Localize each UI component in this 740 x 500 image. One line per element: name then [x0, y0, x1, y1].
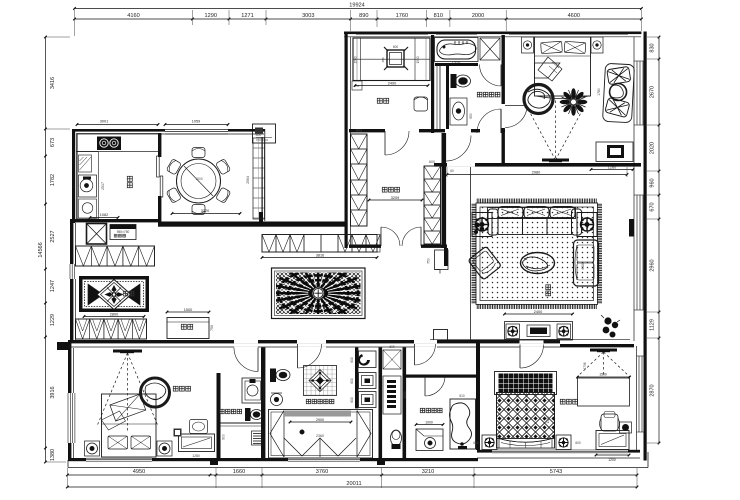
svg-text:2800: 2800: [110, 313, 118, 317]
svg-text:1594: 1594: [546, 416, 550, 423]
svg-text:20011: 20011: [346, 481, 361, 487]
svg-text:600: 600: [350, 397, 354, 403]
svg-text:950×750: 950×750: [117, 230, 130, 234]
svg-text:900: 900: [222, 434, 226, 440]
svg-text:2900: 2900: [316, 418, 324, 422]
svg-text:600: 600: [389, 345, 395, 349]
svg-text:1059: 1059: [192, 120, 200, 124]
svg-text:600: 600: [393, 45, 399, 49]
svg-text:14566: 14566: [38, 242, 44, 257]
svg-text:810: 810: [459, 394, 465, 398]
svg-text:2360: 2360: [316, 434, 324, 438]
svg-text:2870: 2870: [650, 384, 656, 396]
svg-text:600: 600: [350, 357, 354, 363]
svg-text:600: 600: [356, 129, 362, 133]
svg-text:1782: 1782: [50, 174, 56, 186]
svg-text:950: 950: [469, 113, 473, 119]
svg-text:1280: 1280: [192, 454, 200, 458]
svg-text:750: 750: [210, 325, 214, 331]
svg-text:1247: 1247: [50, 280, 56, 292]
svg-text:1500: 1500: [195, 177, 203, 181]
svg-text:830: 830: [650, 43, 656, 52]
svg-text:3816: 3816: [316, 254, 324, 258]
svg-text:2527: 2527: [50, 230, 56, 242]
svg-text:1129: 1129: [650, 319, 656, 331]
svg-text:1290: 1290: [205, 13, 217, 19]
svg-text:3416: 3416: [50, 77, 56, 89]
svg-text:2000: 2000: [472, 13, 484, 19]
svg-text:600: 600: [575, 441, 581, 445]
svg-text:2980: 2980: [532, 171, 540, 175]
svg-text:3220: 3220: [201, 209, 209, 213]
svg-text:2564: 2564: [246, 176, 250, 184]
svg-text:1500: 1500: [184, 308, 192, 312]
svg-text:1000: 1000: [403, 391, 407, 398]
svg-text:2020: 2020: [650, 142, 656, 154]
svg-text:4600: 4600: [568, 13, 580, 19]
svg-text:2670: 2670: [650, 86, 656, 98]
svg-text:750: 750: [427, 258, 431, 264]
svg-text:670: 670: [650, 202, 656, 211]
svg-text:810: 810: [434, 13, 443, 19]
svg-text:3916: 3916: [50, 386, 56, 398]
svg-text:2517: 2517: [101, 182, 105, 190]
svg-text:3210: 3210: [422, 469, 434, 475]
svg-text:600: 600: [350, 378, 354, 384]
svg-text:2490: 2490: [388, 82, 396, 86]
svg-text:3001: 3001: [100, 120, 108, 124]
svg-text:400: 400: [256, 133, 262, 137]
svg-text:1000: 1000: [425, 421, 433, 425]
svg-text:1200: 1200: [608, 458, 616, 462]
svg-text:3003: 3003: [302, 13, 314, 19]
svg-text:600: 600: [429, 160, 435, 164]
svg-text:600: 600: [473, 441, 479, 445]
svg-text:1590: 1590: [416, 56, 420, 63]
svg-text:60: 60: [450, 169, 454, 173]
svg-text:1660: 1660: [233, 469, 245, 475]
svg-text:3760: 3760: [316, 469, 328, 475]
svg-text:673: 673: [50, 138, 56, 147]
svg-text:1520: 1520: [452, 61, 460, 65]
svg-text:890: 890: [359, 13, 368, 19]
svg-text:6400: 6400: [581, 262, 585, 269]
svg-text:2960: 2960: [650, 259, 656, 271]
svg-text:1780: 1780: [597, 88, 601, 96]
svg-text:1736: 1736: [583, 362, 587, 369]
svg-text:1500: 1500: [354, 56, 358, 63]
svg-text:1380: 1380: [50, 449, 56, 461]
svg-text:960: 960: [650, 178, 656, 187]
svg-text:5743: 5743: [550, 469, 562, 475]
svg-text:450: 450: [381, 57, 385, 62]
svg-text:4160: 4160: [127, 13, 139, 19]
svg-text:1760: 1760: [396, 13, 408, 19]
svg-text:1500: 1500: [599, 373, 607, 377]
svg-text:1260: 1260: [608, 166, 616, 170]
svg-text:4950: 4950: [133, 469, 145, 475]
svg-text:1229: 1229: [50, 314, 56, 326]
svg-text:19924: 19924: [349, 3, 365, 9]
svg-text:2400: 2400: [534, 310, 542, 314]
svg-text:1271: 1271: [241, 13, 253, 19]
svg-text:3209: 3209: [391, 196, 399, 200]
svg-text:1082: 1082: [100, 213, 108, 217]
